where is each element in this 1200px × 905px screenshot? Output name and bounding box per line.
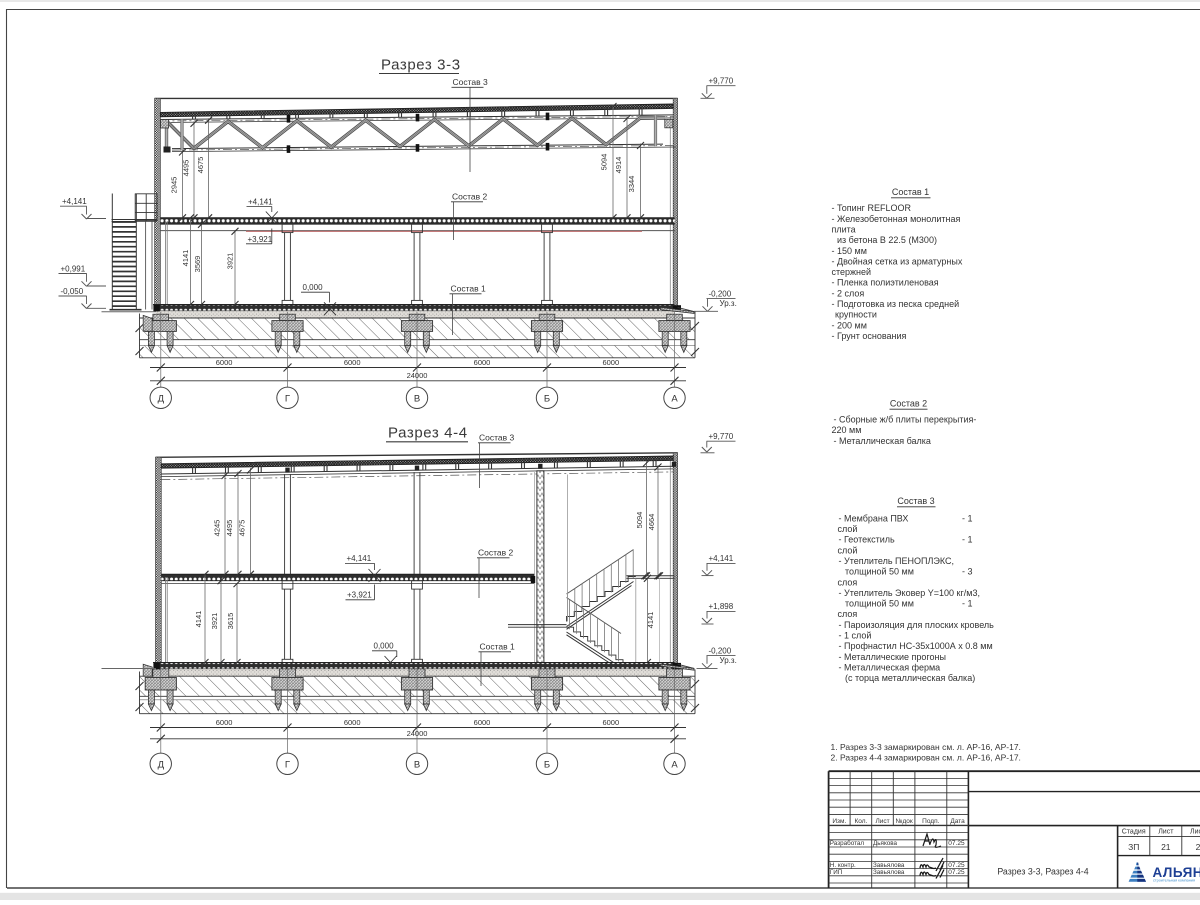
- svg-text:- Геотекстиль: - Геотекстиль: [839, 535, 896, 545]
- svg-text:Завьялова: Завьялова: [873, 869, 905, 876]
- svg-text:А: А: [671, 759, 678, 770]
- svg-text:5094: 5094: [600, 154, 609, 171]
- svg-text:Разрез 3-3, Разрез 4-4: Разрез 3-3, Разрез 4-4: [997, 867, 1088, 877]
- svg-text:07.25: 07.25: [948, 869, 965, 876]
- svg-text:6000: 6000: [216, 358, 233, 367]
- svg-text:+1,898: +1,898: [709, 602, 734, 611]
- svg-text:Н. контр.: Н. контр.: [830, 862, 856, 869]
- svg-text:07.25: 07.25: [948, 862, 965, 869]
- svg-text:Д: Д: [158, 759, 165, 770]
- svg-text:- Подготовка из песка средней: - Подготовка из песка средней: [832, 299, 960, 309]
- svg-text:- Профнастил НС-35х1000А х 0.8: - Профнастил НС-35х1000А х 0.8 мм: [839, 641, 993, 651]
- svg-text:5094: 5094: [635, 512, 644, 529]
- svg-text:крупности: крупности: [835, 310, 877, 320]
- svg-text:-0,200: -0,200: [709, 646, 732, 655]
- svg-text:21: 21: [1161, 842, 1171, 852]
- svg-text:4914: 4914: [614, 157, 623, 174]
- svg-text:+4,141: +4,141: [248, 197, 273, 206]
- svg-text:+4,141: +4,141: [347, 554, 372, 563]
- svg-text:6000: 6000: [474, 718, 491, 727]
- svg-text:- Сборные ж/б плиты перекрытия: - Сборные ж/б плиты перекрытия-: [834, 415, 977, 425]
- svg-text:ЗП: ЗП: [1128, 842, 1139, 852]
- svg-text:Разрез 3-3: Разрез 3-3: [381, 57, 461, 74]
- svg-text:Состав 3: Состав 3: [479, 433, 515, 443]
- svg-text:- Железобетонная монолитная: - Железобетонная монолитная: [832, 214, 961, 224]
- svg-text:- 150 мм: - 150 мм: [832, 246, 867, 256]
- svg-text:- Грунт основания: - Грунт основания: [832, 331, 907, 341]
- svg-text:Лист: Лист: [1158, 829, 1174, 836]
- svg-text:3615: 3615: [226, 613, 235, 630]
- svg-text:1. Разрез 3-3 замаркирован см.: 1. Разрез 3-3 замаркирован см. л. АР-16,…: [831, 742, 1021, 752]
- svg-text:слоя: слоя: [838, 577, 858, 587]
- svg-text:слой: слой: [838, 524, 858, 534]
- svg-text:Лист: Лист: [875, 818, 889, 825]
- svg-text:Г: Г: [285, 759, 290, 770]
- svg-text:Состав 3: Состав 3: [453, 77, 489, 87]
- svg-text:4141: 4141: [646, 612, 655, 629]
- svg-text:0,000: 0,000: [303, 283, 324, 292]
- svg-text:- Утеплитель ПЕНОПЛЭКС,: - Утеплитель ПЕНОПЛЭКС,: [839, 556, 955, 566]
- svg-text:Состав 2: Состав 2: [478, 548, 514, 558]
- svg-text:слоя: слоя: [838, 609, 858, 619]
- svg-text:- Металлическая ферма: - Металлическая ферма: [839, 663, 941, 673]
- svg-text:6000: 6000: [344, 718, 361, 727]
- svg-text:4141: 4141: [181, 250, 190, 267]
- svg-text:Г: Г: [285, 393, 290, 404]
- svg-text:6000: 6000: [474, 358, 491, 367]
- svg-text:Лис: Лис: [1190, 829, 1200, 836]
- svg-text:07.25: 07.25: [948, 840, 965, 847]
- svg-text:- Металлические прогоны: - Металлические прогоны: [839, 652, 946, 662]
- svg-text:- 1: - 1: [962, 535, 973, 545]
- svg-text:6000: 6000: [344, 358, 361, 367]
- svg-text:Состав 2: Состав 2: [452, 192, 488, 202]
- svg-text:220 мм: 220 мм: [832, 425, 862, 435]
- svg-text:+3,921: +3,921: [248, 235, 273, 244]
- svg-text:Состав 1: Состав 1: [451, 284, 487, 294]
- svg-text:6000: 6000: [216, 718, 233, 727]
- svg-text:+4,141: +4,141: [62, 197, 87, 206]
- svg-text:Ур.з.: Ур.з.: [720, 656, 737, 665]
- svg-text:+3,921: +3,921: [347, 591, 372, 600]
- svg-text:4495: 4495: [225, 520, 234, 537]
- svg-text:- 1: - 1: [962, 513, 973, 523]
- svg-text:Д: Д: [158, 393, 165, 404]
- svg-text:Завьялова: Завьялова: [873, 862, 905, 869]
- svg-text:Дата: Дата: [950, 818, 965, 825]
- svg-text:+9,770: +9,770: [709, 77, 734, 86]
- svg-text:- 3: - 3: [962, 567, 973, 577]
- svg-text:- Металлическая балка: - Металлическая балка: [834, 436, 931, 446]
- svg-text:4675: 4675: [237, 520, 246, 537]
- svg-text:4675: 4675: [196, 157, 205, 174]
- svg-text:4495: 4495: [182, 160, 191, 177]
- svg-text:ГИП: ГИП: [830, 869, 843, 876]
- svg-text:Состав 3: Состав 3: [897, 496, 934, 506]
- svg-text:В: В: [414, 759, 420, 770]
- svg-text:- 2 слоя: - 2 слоя: [832, 288, 865, 298]
- svg-text:3921: 3921: [225, 253, 234, 270]
- svg-text:толщиной 50 мм: толщиной 50 мм: [845, 599, 914, 609]
- svg-text:Стадия: Стадия: [1122, 829, 1146, 836]
- svg-text:3344: 3344: [627, 176, 636, 193]
- svg-text:+4,141: +4,141: [709, 554, 734, 563]
- svg-text:3921: 3921: [210, 613, 219, 630]
- svg-text:4245: 4245: [213, 520, 222, 537]
- svg-text:- 200 мм: - 200 мм: [832, 320, 867, 330]
- svg-text:Ур.з.: Ур.з.: [720, 299, 737, 308]
- svg-text:Дьякова: Дьякова: [873, 840, 898, 847]
- svg-text:6000: 6000: [602, 718, 619, 727]
- svg-text:№док: №док: [895, 818, 912, 825]
- svg-text:- Топинг REFLOOR: - Топинг REFLOOR: [832, 203, 912, 213]
- svg-text:- Двойная сетка из арматурных: - Двойная сетка из арматурных: [832, 256, 963, 266]
- svg-text:-0,050: -0,050: [61, 287, 84, 296]
- svg-text:- Утеплитель Эковер Y=100 кг/м: - Утеплитель Эковер Y=100 кг/м3,: [839, 588, 980, 598]
- svg-text:Кол.: Кол.: [854, 818, 867, 825]
- svg-text:+0,991: +0,991: [61, 264, 86, 273]
- svg-text:24000: 24000: [407, 729, 428, 738]
- svg-text:толщиной 50 мм: толщиной 50 мм: [845, 567, 914, 577]
- svg-text:3569: 3569: [193, 256, 202, 273]
- svg-text:2: 2: [1196, 842, 1200, 852]
- svg-text:Состав 1: Состав 1: [480, 642, 516, 652]
- svg-text:Разработал: Разработал: [830, 839, 865, 847]
- svg-text:- 1: - 1: [962, 599, 973, 609]
- svg-text:Изм.: Изм.: [832, 818, 846, 825]
- svg-text:Разрез 4-4: Разрез 4-4: [388, 425, 468, 442]
- svg-text:- Пленка полиэтиленовая: - Пленка полиэтиленовая: [832, 278, 939, 288]
- svg-text:Состав 1: Состав 1: [892, 187, 929, 197]
- svg-text:Состав 2: Состав 2: [890, 399, 927, 409]
- svg-text:24000: 24000: [407, 371, 428, 380]
- svg-text:- 1 слой: - 1 слой: [839, 631, 872, 641]
- svg-text:- Мембрана ПВХ: - Мембрана ПВХ: [839, 513, 909, 523]
- svg-text:строительная компания: строительная компания: [1153, 878, 1195, 882]
- svg-text:-0,200: -0,200: [709, 289, 732, 298]
- svg-text:Б: Б: [544, 759, 550, 770]
- svg-text:Б: Б: [544, 393, 550, 404]
- svg-text:+9,770: +9,770: [709, 432, 734, 441]
- svg-text:А: А: [671, 393, 678, 404]
- svg-text:плита: плита: [832, 225, 856, 235]
- svg-text:6000: 6000: [602, 358, 619, 367]
- svg-text:- Пароизоляция для плоских кро: - Пароизоляция для плоских кровель: [839, 620, 995, 630]
- svg-text:слой: слой: [838, 545, 858, 555]
- svg-text:стержней: стержней: [832, 267, 872, 277]
- svg-text:2. Разрез 4-4 замаркирован см.: 2. Разрез 4-4 замаркирован см. л. АР-16,…: [831, 753, 1021, 763]
- svg-text:Подп.: Подп.: [922, 818, 939, 825]
- svg-text:2945: 2945: [170, 177, 179, 194]
- svg-text:0,000: 0,000: [374, 642, 395, 651]
- svg-text:В: В: [414, 393, 420, 404]
- svg-text:4141: 4141: [194, 611, 203, 628]
- svg-text:4664: 4664: [647, 514, 656, 531]
- svg-text:из бетона В 22.5 (М300): из бетона В 22.5 (М300): [837, 235, 937, 245]
- svg-text:(с торца металлическая балка): (с торца металлическая балка): [845, 673, 975, 683]
